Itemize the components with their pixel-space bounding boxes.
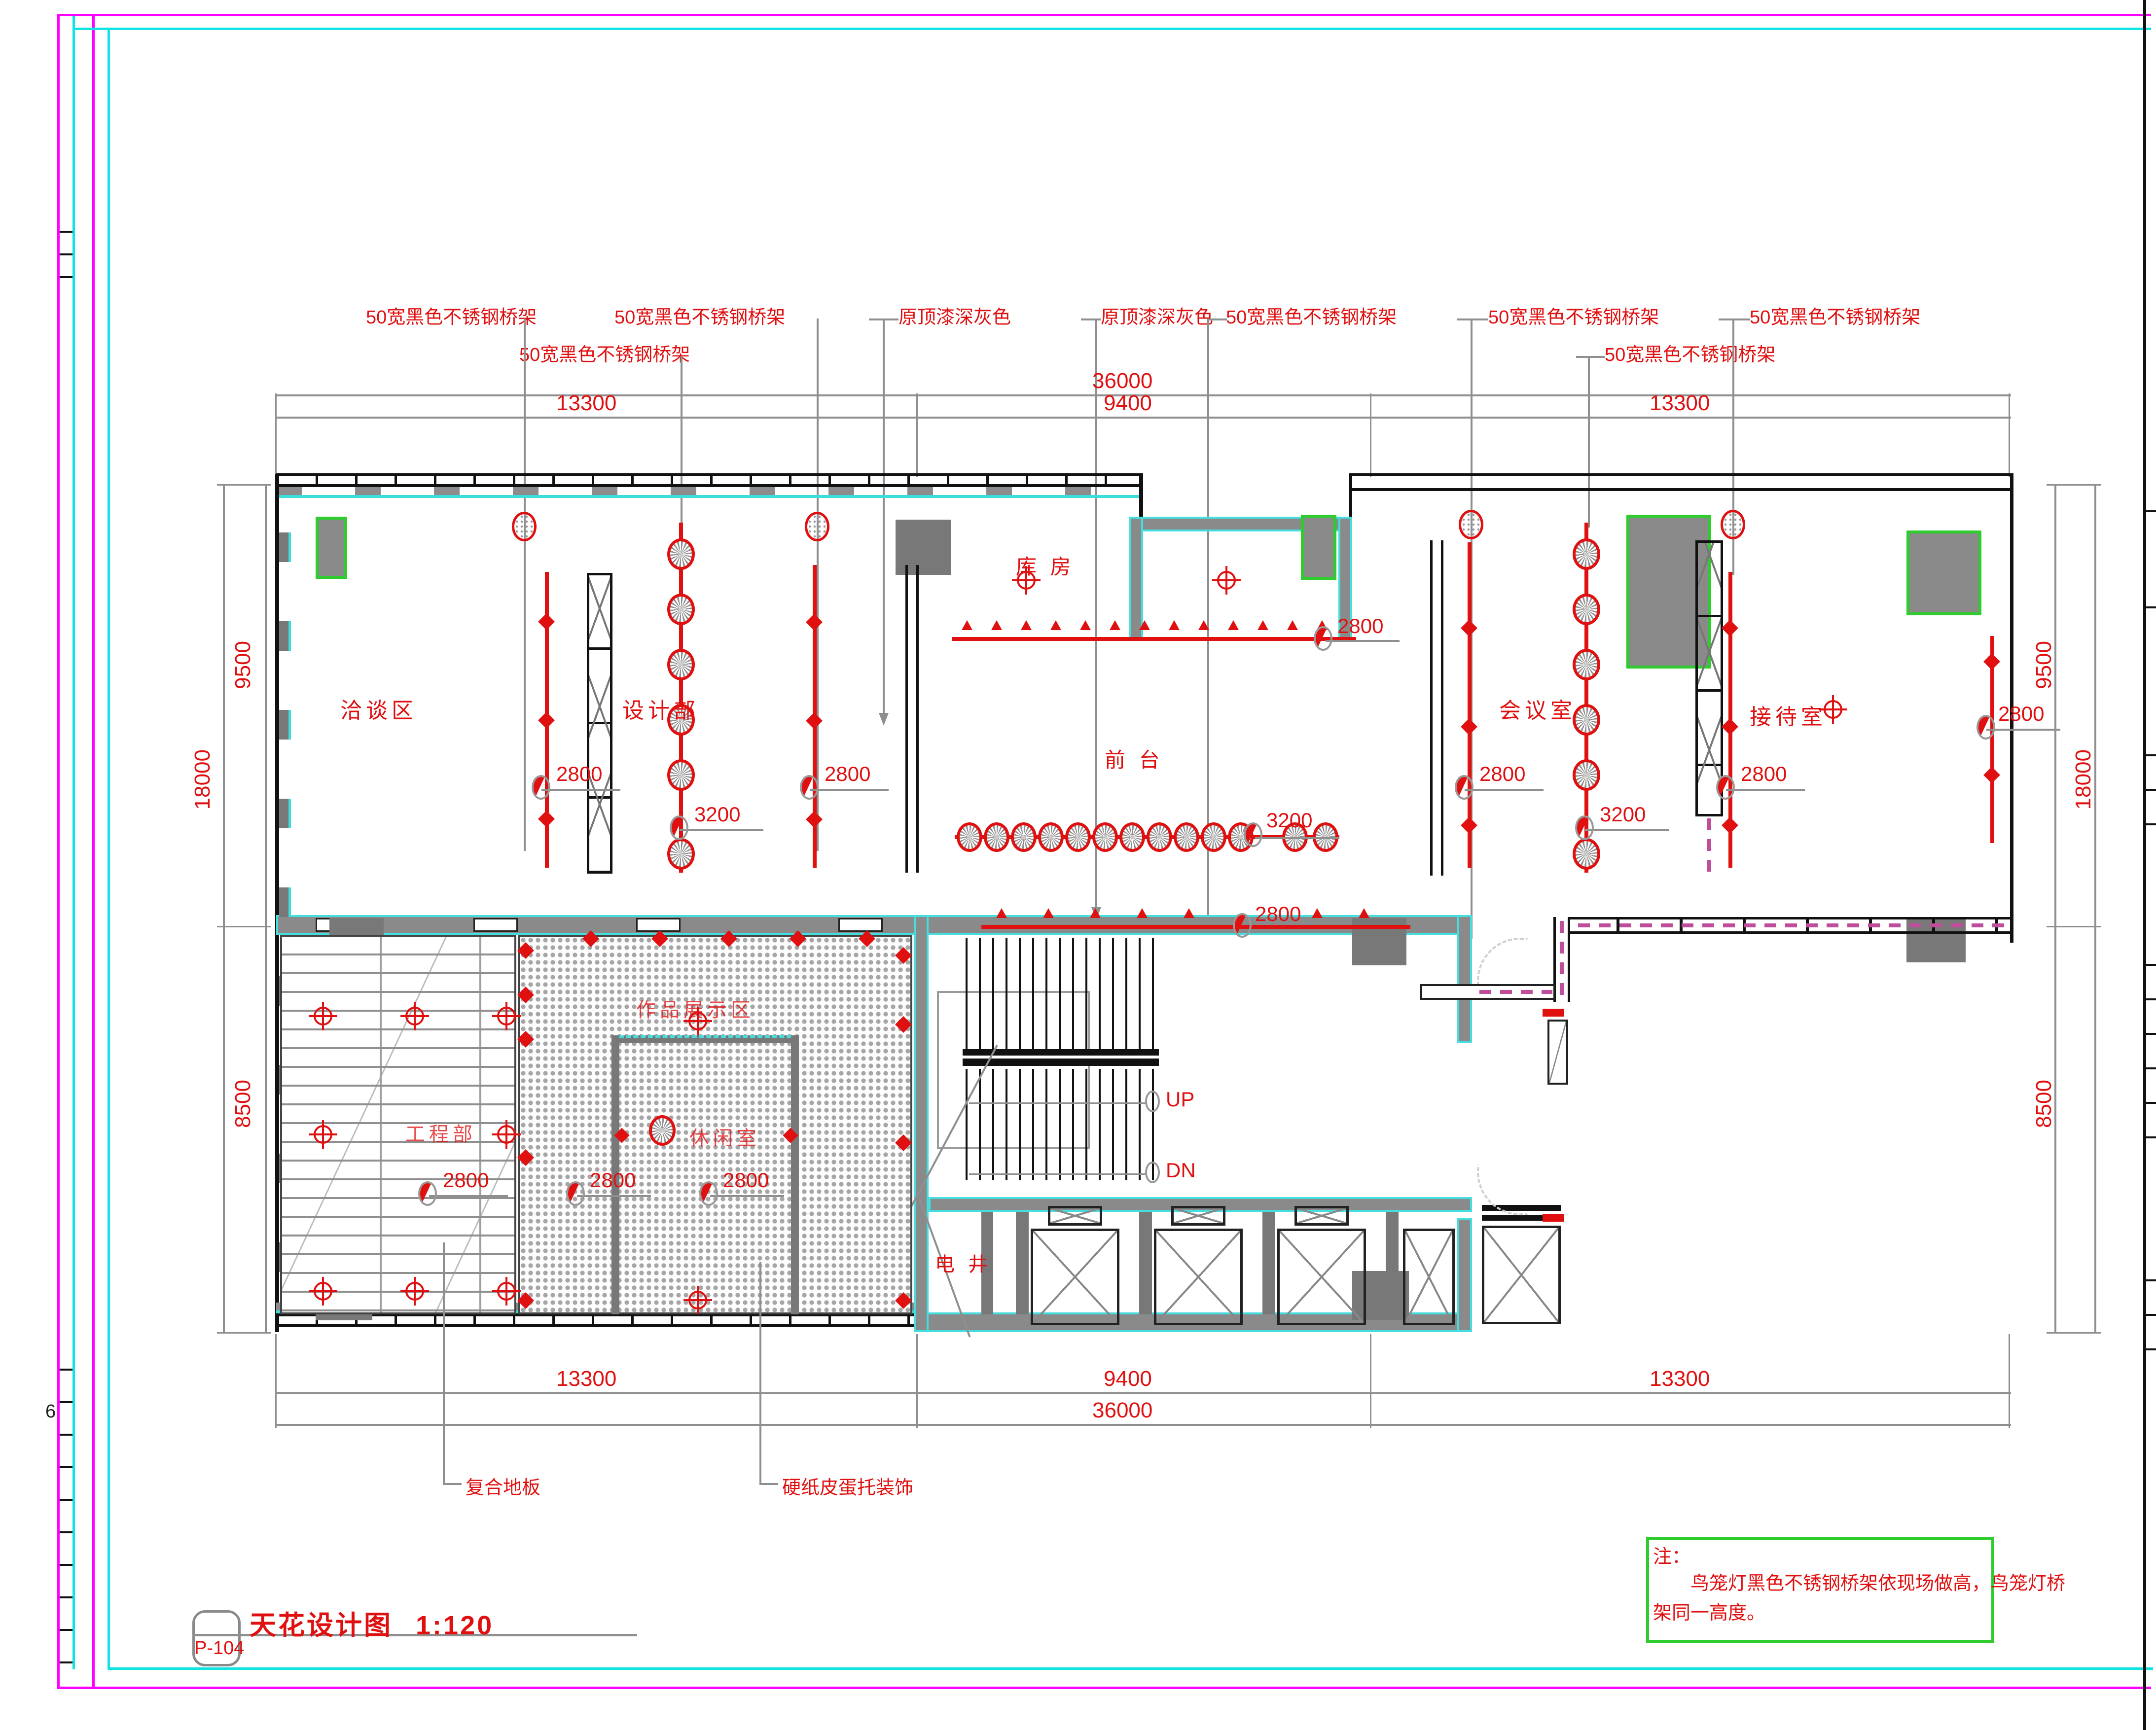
birdcage-lamp-icon (1573, 594, 1600, 625)
dim-text: 9500 (231, 641, 255, 689)
wall-step (1349, 473, 1352, 521)
wall-top-right-inner (1352, 488, 2013, 491)
leader-line (443, 1242, 445, 1485)
elevation-text: 2800 (590, 1168, 636, 1192)
dim-text: 18000 (190, 749, 215, 810)
dim-line (2054, 486, 2056, 1334)
ceiling-target-icon (1217, 571, 1236, 590)
birdcage-lamp-icon (1065, 822, 1091, 852)
dim-ext (2047, 926, 2101, 927)
column (1906, 530, 1981, 615)
partition-line (905, 565, 908, 873)
leader-line (1719, 318, 1750, 320)
cable-tray-arrow-icon (538, 712, 555, 729)
cable-tray-arrow-icon (806, 712, 823, 729)
birdcage-lamp-icon (957, 822, 982, 852)
dim-ext (916, 393, 918, 477)
birdcage-lamp-icon (1573, 704, 1600, 736)
cable-tray-h (981, 925, 1410, 929)
elevation-text: 2800 (1998, 702, 2044, 726)
ceiling-target-icon (405, 1282, 424, 1301)
column (896, 520, 951, 575)
core-wall-right-upper (1457, 915, 1472, 1043)
elevation-line (577, 1195, 651, 1197)
left-strip-cell (60, 1531, 72, 1533)
cable-tray-arrow-icon (1090, 908, 1101, 918)
downlight-icon (1721, 510, 1745, 539)
callout-tray-2: 50宽黑色不锈钢桥架 (519, 339, 690, 366)
callout-tray-7: 50宽黑色不锈钢桥架 (1750, 302, 1920, 329)
corridor-stub-dash (1479, 990, 1552, 994)
leader-line (759, 1483, 778, 1485)
cable-tray-arrow-icon (1722, 817, 1738, 834)
mid-wall-gap (636, 918, 681, 932)
elevation-anchor (1716, 775, 1735, 800)
frame-right-strip (2143, 0, 2146, 1730)
cable-tray-arrow-icon (1228, 620, 1239, 630)
cable-tray-arrow-icon (962, 620, 972, 630)
elevation-text: 2800 (1479, 762, 1525, 786)
window-mullions-top (276, 487, 1142, 498)
ceiling-target-icon (405, 1007, 424, 1025)
right-strip-cell (2143, 1067, 2156, 1069)
dim-text-total-top: 36000 (1092, 369, 1152, 393)
frame-bottom-magenta (57, 1687, 2151, 1689)
callout-ceiling-2: 原顶漆深灰色 (1101, 302, 1213, 329)
birdcage-lamp-icon (1573, 838, 1600, 870)
dim-line (276, 1392, 2011, 1394)
room-label-storage: 库 房 (1016, 550, 1075, 580)
cable-tray-arrow-icon (1461, 817, 1477, 834)
cable-tray-arrow-icon (1722, 718, 1738, 735)
birdcage-lamp-icon (667, 649, 695, 680)
cable-tray-arrow-icon (1461, 718, 1477, 735)
leader-line (524, 318, 526, 851)
elevation-anchor (699, 1181, 718, 1206)
dim-text: 18000 (2071, 749, 2096, 810)
left-strip-cell (60, 1661, 72, 1663)
leader-line (443, 1483, 462, 1485)
ceiling-target-icon (497, 1125, 516, 1144)
partition-glass-dash (1707, 818, 1711, 876)
stair-walkline-up (969, 1102, 1147, 1104)
dim-ext (217, 926, 271, 927)
stair-walkline-end (1145, 1091, 1160, 1112)
ceiling-target-icon (314, 1007, 332, 1025)
callout-floor: 复合地板 (466, 1472, 540, 1499)
right-strip-cell (2143, 1279, 2156, 1281)
ceiling-target-icon (497, 1007, 516, 1025)
elevation-anchor (670, 815, 688, 840)
room-label-design: 设计部 (622, 693, 699, 724)
cable-tray-arrow-icon (538, 811, 555, 827)
note-head: 注： (1653, 1541, 1690, 1568)
dim-text-total-bottom: 36000 (1092, 1398, 1152, 1423)
right-strip-cell (2143, 1136, 2156, 1138)
birdcage-lamp-icon (1038, 822, 1064, 852)
dim-text: 9500 (2032, 641, 2056, 689)
leader-line (1576, 356, 1605, 358)
birdcage-lamp-icon (1201, 822, 1226, 852)
elevation-anchor (418, 1181, 437, 1206)
elevation-text: 2800 (443, 1168, 489, 1192)
wall-top-right (1352, 473, 2013, 476)
elevator-vent (1294, 1206, 1349, 1226)
birdcage-lamp-icon (984, 822, 1009, 852)
cable-tray-arrow-icon (996, 908, 1007, 918)
callout-tray-3: 50宽黑色不锈钢桥架 (614, 302, 785, 329)
elevation-text: 2800 (1255, 902, 1301, 926)
dim-line (265, 486, 267, 1334)
elevation-line (680, 829, 763, 831)
dim-ext (2009, 393, 2010, 477)
cable-tray-arrow-icon (538, 613, 555, 630)
room-label-engineering: 工程部 (405, 1118, 476, 1147)
elevation-anchor (1575, 815, 1594, 840)
dim-ext (275, 1334, 277, 1428)
door-leaf (1547, 1020, 1568, 1085)
room-label-meeting: 会议室 (1499, 693, 1576, 724)
room-label-shaft: 电 井 (935, 1248, 992, 1277)
elevation-line (810, 789, 889, 791)
birdcage-lamp-icon (667, 594, 695, 625)
elevation-text: 2800 (1741, 762, 1787, 786)
cable-tray-arrow-icon (1110, 620, 1120, 630)
frame-top-magenta (57, 14, 2151, 16)
cable-tray-arrow-icon (806, 614, 823, 631)
elevator-vent (1048, 1206, 1102, 1226)
left-strip-cell (60, 1499, 72, 1501)
elevation-text: 3200 (1266, 809, 1312, 832)
column (316, 517, 347, 579)
elevation-line (1986, 729, 2060, 731)
elevation-text: 3200 (694, 803, 740, 826)
ceiling-target-icon (688, 1012, 707, 1030)
ceiling-target-icon (688, 1291, 707, 1309)
mid-wall-gap (473, 918, 518, 932)
dim-text: 13300 (1650, 1367, 1710, 1391)
left-strip-cell (60, 1401, 72, 1403)
left-wall-mullion (279, 532, 291, 562)
dim-line (2094, 486, 2096, 1334)
cable-tray-arrow-icon (1050, 620, 1061, 630)
room-label-lounge: 休闲室 (689, 1122, 760, 1151)
cable-tray-arrow-icon (1043, 908, 1054, 918)
corridor-glass-jog-dash (1560, 921, 1564, 1000)
left-strip-cell (60, 1369, 72, 1371)
cable-tray-arrow-icon (1312, 908, 1323, 918)
elevator-car (1031, 1229, 1119, 1325)
leader-line (1081, 318, 1101, 320)
wall-step (1139, 473, 1143, 521)
elevation-text: 2800 (723, 1168, 769, 1192)
dim-line (276, 1424, 2011, 1426)
elevation-anchor (1314, 626, 1332, 651)
stair-risers-upper (966, 938, 1156, 1049)
leader-line (759, 1262, 761, 1485)
right-strip-cell (2143, 606, 2156, 608)
birdcage-lamp-icon (1573, 759, 1600, 791)
shaft-divider (1262, 1212, 1275, 1314)
dim-text: 9400 (1104, 391, 1152, 416)
dim-text: 13300 (1650, 391, 1710, 416)
elevation-anchor (1976, 715, 1995, 740)
left-wall-mullion (279, 621, 291, 651)
leader-arrow (879, 713, 889, 726)
dim-text: 13300 (556, 1367, 616, 1391)
elevation-line (1465, 789, 1544, 791)
cable-tray-arrow-icon (1359, 908, 1369, 918)
room-label-front-desk: 前 台 (1105, 743, 1164, 774)
left-strip-cell (60, 1596, 72, 1598)
callout-tray-4: 50宽黑色不锈钢桥架 (1226, 302, 1397, 329)
window-wall-top (276, 473, 1142, 487)
leader-line (1457, 318, 1488, 320)
frame-outer-left2 (92, 14, 95, 1689)
frame-outer-left (57, 14, 60, 1689)
cable-tray-arrow-icon (1983, 767, 2000, 783)
dim-ext (2047, 484, 2101, 486)
cable-tray-h (952, 637, 1356, 641)
cable-tray-arrow-icon (1258, 620, 1268, 630)
core-wall-left (914, 915, 929, 1332)
left-wall-mullion (279, 799, 291, 828)
cable-tray-arrow-icon (1169, 620, 1180, 630)
elevation-line (541, 789, 620, 791)
right-strip-cell (2143, 754, 2156, 756)
leader-line (1207, 318, 1227, 320)
cable-tray-arrow-icon (1983, 653, 2000, 670)
cable-tray-arrow-icon (1137, 908, 1148, 918)
cable-tray-arrow-icon (1184, 908, 1194, 918)
dim-ext (1370, 1334, 1371, 1428)
sheet-index-char: 6 (45, 1401, 56, 1422)
cable-tray-arrow-icon (1139, 620, 1150, 630)
elevator-car (1403, 1229, 1455, 1325)
room-label-negotiation: 洽谈区 (340, 693, 417, 724)
frame-inner-left2 (108, 28, 110, 1669)
birdcage-lamp-icon (1573, 538, 1600, 570)
cable-tray-arrow-icon (1021, 620, 1032, 630)
note-line2: 架同一高度。 (1653, 1597, 1765, 1624)
left-wall-mullion (279, 887, 291, 917)
lounge-wall-top (611, 1035, 799, 1043)
right-strip-cell (2143, 510, 2156, 512)
dim-ext (1370, 393, 1371, 477)
right-strip-cell (2143, 1033, 2156, 1035)
drawing-scale: 1:120 (416, 1611, 494, 1640)
corridor-glass-dash (1557, 923, 2008, 927)
drawing-title: 天花设计图 1:120 (250, 1603, 494, 1642)
dim-ext (217, 484, 271, 486)
frame-bottom-cyan (108, 1667, 2153, 1670)
dim-ext (2047, 1332, 2101, 1334)
dim-ext (2009, 1334, 2010, 1428)
leader-line (817, 318, 819, 851)
left-wall-mullion (279, 710, 291, 740)
elevation-anchor (1455, 775, 1473, 800)
leader-line (681, 356, 683, 527)
elevation-anchor (1233, 913, 1252, 938)
elevation-line (710, 1195, 784, 1197)
dim-line (223, 486, 225, 1334)
elevator-car (1482, 1226, 1561, 1324)
elevation-line (1255, 837, 1339, 839)
partition-line (916, 565, 919, 873)
leader-line (883, 318, 885, 713)
left-strip-cell (60, 1434, 72, 1436)
elevation-text: 2800 (825, 762, 870, 786)
birdcage-lamp-icon (1119, 822, 1145, 852)
shaft-divider (1386, 1212, 1399, 1314)
drawing-title-text: 天花设计图 (250, 1611, 393, 1640)
lounge-wall-right (791, 1035, 799, 1314)
birdcage-lamp-icon (649, 1115, 676, 1146)
stair-risers-lower (966, 1069, 1156, 1180)
birdcage-lamp-icon (1011, 822, 1037, 852)
dim-ext (916, 1334, 918, 1428)
left-strip-cell (60, 231, 72, 233)
door-swing-arc (1477, 1129, 1563, 1215)
elevator-car (1154, 1229, 1243, 1325)
birdcage-lamp-icon (1174, 822, 1199, 852)
elevation-line (1326, 640, 1400, 642)
elevation-text: 2800 (1337, 614, 1383, 638)
callout-ceiling-1: 原顶漆深灰色 (898, 302, 1011, 329)
ceiling-target-icon (314, 1282, 332, 1301)
birdcage-lamp-icon (1147, 822, 1172, 852)
downlight-icon (1459, 510, 1483, 539)
dim-text: 9400 (1104, 1367, 1152, 1391)
elevation-text: 3200 (1600, 803, 1646, 826)
elevation-anchor (532, 775, 550, 800)
right-strip-cell (2143, 789, 2156, 791)
cable-tray-arrow-icon (1287, 620, 1298, 630)
right-strip-cell (2143, 964, 2156, 966)
elevation-line (429, 1195, 508, 1197)
right-strip-cell (2143, 1102, 2156, 1104)
birdcage-lamp-icon (1092, 822, 1118, 852)
drawing-sheet: 6 50宽黑色不锈钢桥架 50宽黑色不锈钢桥架 50宽黑色不锈钢桥架 原顶漆深灰… (0, 0, 2156, 1730)
right-strip-cell (2143, 1314, 2156, 1316)
birdcage-lamp-icon (1573, 649, 1600, 680)
room-label-reception: 接待室 (1750, 699, 1827, 731)
cable-tray-arrow-icon (991, 620, 1002, 630)
elevation-anchor (800, 775, 819, 800)
door-threshold (1543, 1009, 1564, 1017)
cable-tray-arrow-icon (1461, 620, 1477, 636)
right-strip-cell (2143, 823, 2156, 825)
core-wall-right-lower (1457, 1218, 1472, 1332)
downlight-icon (805, 512, 829, 541)
engineering-floor-hatch (280, 935, 516, 1314)
cable-tray-arrow-icon (1080, 620, 1091, 630)
elevation-anchor (1244, 822, 1262, 847)
stair-walkline-end (1145, 1162, 1160, 1183)
mid-wall-gap (838, 918, 883, 932)
callout-tray-6: 50宽黑色不锈钢桥架 (1605, 339, 1775, 366)
ceiling-target-icon (314, 1125, 332, 1144)
frame-top-cyan (72, 28, 2151, 30)
birdcage-lamp-icon (667, 838, 695, 870)
left-strip-cell (60, 1466, 72, 1468)
partition-line (1441, 540, 1443, 876)
callout-egg-tray: 硬纸皮蛋托装饰 (782, 1472, 913, 1499)
truss-column (1695, 540, 1723, 816)
left-strip-cell (60, 1564, 72, 1566)
truss-column (587, 573, 612, 874)
shaft-divider (1016, 1212, 1029, 1314)
elevation-anchor (566, 1181, 585, 1206)
dim-text: 8500 (231, 1080, 255, 1128)
wall-left (275, 474, 279, 1332)
left-strip-cell (60, 1629, 72, 1631)
dim-ext (275, 393, 277, 477)
elevation-text: 2800 (556, 762, 602, 786)
stair-up-label: UP (1166, 1088, 1194, 1111)
window-wall-bottom (276, 1313, 917, 1327)
cable-tray-arrow-icon (806, 811, 823, 828)
callout-tray-1: 50宽黑色不锈钢桥架 (366, 302, 537, 329)
note-line1: 鸟笼灯黑色不锈钢桥架依现场做高，鸟笼灯桥 (1653, 1568, 2065, 1595)
cable-tray-arrow-icon (1722, 620, 1738, 636)
left-strip-cell (60, 276, 72, 278)
dim-text: 13300 (556, 391, 616, 416)
right-strip-cell (2143, 998, 2156, 1000)
dim-text: 8500 (2032, 1080, 2056, 1128)
dim-line (276, 417, 2011, 419)
elevator-car (1277, 1229, 1366, 1325)
frame-inner-left (72, 14, 75, 1669)
column (1301, 515, 1336, 580)
birdcage-lamp-icon (667, 759, 695, 791)
shaft-divider (1139, 1212, 1152, 1314)
birdcage-lamp-icon (667, 538, 695, 570)
callout-tray-5: 50宽黑色不锈钢桥架 (1488, 302, 1659, 329)
stair-walkline-dn (969, 1173, 1147, 1175)
leader-line (1588, 356, 1590, 528)
stair-dn-label: DN (1166, 1159, 1196, 1182)
downlight-icon (512, 512, 537, 541)
elevation-line (1585, 829, 1669, 831)
partition-line (1430, 540, 1433, 876)
left-strip-cell (60, 253, 72, 255)
leader-line (1095, 318, 1097, 907)
sheet-number: P-104 (194, 1638, 244, 1659)
elevator-vent (1171, 1206, 1225, 1226)
elevation-line (1726, 789, 1805, 791)
dim-ext (217, 1332, 271, 1334)
cable-tray-arrow-icon (1198, 620, 1209, 630)
door-threshold (1543, 1214, 1564, 1222)
ceiling-target-icon (497, 1282, 516, 1301)
right-strip-cell (2143, 1348, 2156, 1350)
